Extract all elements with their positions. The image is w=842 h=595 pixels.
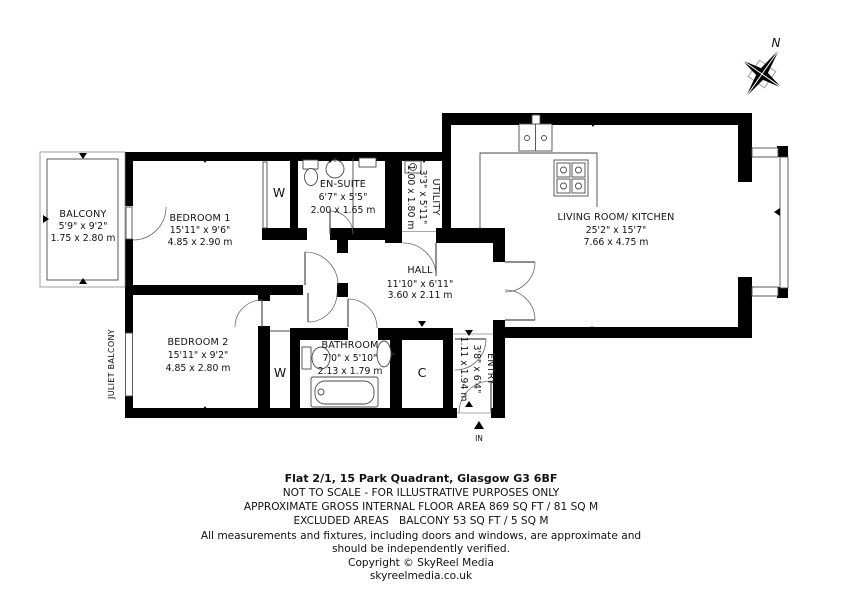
footer-floor-area: APPROXIMATE GROSS INTERNAL FLOOR AREA 86…: [244, 501, 598, 513]
juliet-balcony-window: [126, 333, 133, 396]
floorplan-page: BALCONY 5'9" x 9'2" 1.75 x 2.80 m BEDROO…: [0, 0, 842, 595]
floor-plan: BALCONY 5'9" x 9'2" 1.75 x 2.80 m BEDROO…: [0, 0, 842, 595]
toilet-cistern: [302, 347, 311, 369]
room-label-entry: ENTRY: [485, 353, 496, 385]
room-dim-bedroom1-imperial: 15'11" x 9'6": [170, 225, 231, 236]
room-label-ensuite: EN-SUITE: [320, 179, 366, 190]
room-dim-bathroom-imperial: 7'0" x 5'10": [323, 353, 378, 364]
room-dim-living-metric: 7.66 x 4.75 m: [584, 237, 649, 248]
room-label-balcony: BALCONY: [59, 209, 106, 220]
room-label-bedroom2: BEDROOM 2: [167, 337, 228, 348]
room-label-bathroom: BATHROOM: [321, 340, 378, 351]
footer-address: Flat 2/1, 15 Park Quadrant, Glasgow G3 6…: [285, 472, 558, 485]
room-label-bedroom1: BEDROOM 1: [169, 213, 230, 224]
footer-excluded-areas: EXCLUDED AREAS BALCONY 53 SQ FT / 5 SQ M: [293, 515, 548, 527]
bay-windows: [752, 148, 788, 296]
room-dim-bedroom2-metric: 4.85 x 2.80 m: [166, 363, 231, 374]
room-dim-bedroom2-imperial: 15'11" x 9'2": [168, 350, 229, 361]
entrance-in-label: IN: [475, 434, 483, 443]
room-label-utility: UTILITY: [430, 178, 441, 215]
wardrobe-marker-2: W: [274, 365, 286, 380]
north-label: N: [772, 36, 781, 50]
room-dim-ensuite-imperial: 6'7" x 5'5": [319, 192, 368, 203]
room-dim-utility-imperial: 3'3" x 5'11": [417, 170, 428, 225]
footer-disclaimer-1: All measurements and fixtures, including…: [201, 530, 641, 542]
room-dim-utility-metric: 1.00 x 1.80 m: [405, 165, 416, 230]
room-label-living: LIVING ROOM/ KITCHEN: [557, 212, 674, 223]
room-dim-entry-imperial: 3'8" x 6'4": [471, 345, 482, 394]
room-dim-living-imperial: 25'2" x 15'7": [586, 225, 647, 236]
room-dim-entry-metric: 1.11 x 1.94 m: [458, 337, 469, 402]
wardrobe-marker-1: W: [273, 185, 285, 200]
footer-website: skyreelmedia.co.uk: [370, 570, 473, 582]
basin: [377, 341, 391, 367]
hob: [554, 160, 588, 196]
cupboard-marker: C: [418, 365, 427, 380]
entrance-arrow-icon: [474, 421, 484, 429]
room-dim-bedroom1-metric: 4.85 x 2.90 m: [168, 237, 233, 248]
room-label-hall: HALL: [407, 265, 433, 276]
room-dim-ensuite-metric: 2.00 x 1.65 m: [311, 205, 376, 216]
room-dim-balcony-metric: 1.75 x 2.80 m: [51, 233, 116, 244]
room-dim-bathroom-metric: 2.13 x 1.79 m: [318, 366, 383, 377]
footer: Flat 2/1, 15 Park Quadrant, Glasgow G3 6…: [201, 472, 641, 582]
room-labels: BALCONY 5'9" x 9'2" 1.75 x 2.80 m BEDROO…: [51, 165, 675, 402]
room-dim-balcony-imperial: 5'9" x 9'2": [59, 221, 108, 232]
room-dim-hall-metric: 3.60 x 2.11 m: [388, 290, 453, 301]
room-dim-hall-imperial: 11'10" x 6'11": [387, 279, 453, 290]
juliet-balcony-label: JULIET BALCONY: [107, 329, 116, 400]
footer-scale-note: NOT TO SCALE - FOR ILLUSTRATIVE PURPOSES…: [283, 487, 560, 499]
footer-copyright: Copyright © SkyReel Media: [348, 557, 494, 569]
compass-rose: N: [742, 36, 781, 97]
footer-disclaimer-2: should be independently verified.: [332, 543, 510, 555]
